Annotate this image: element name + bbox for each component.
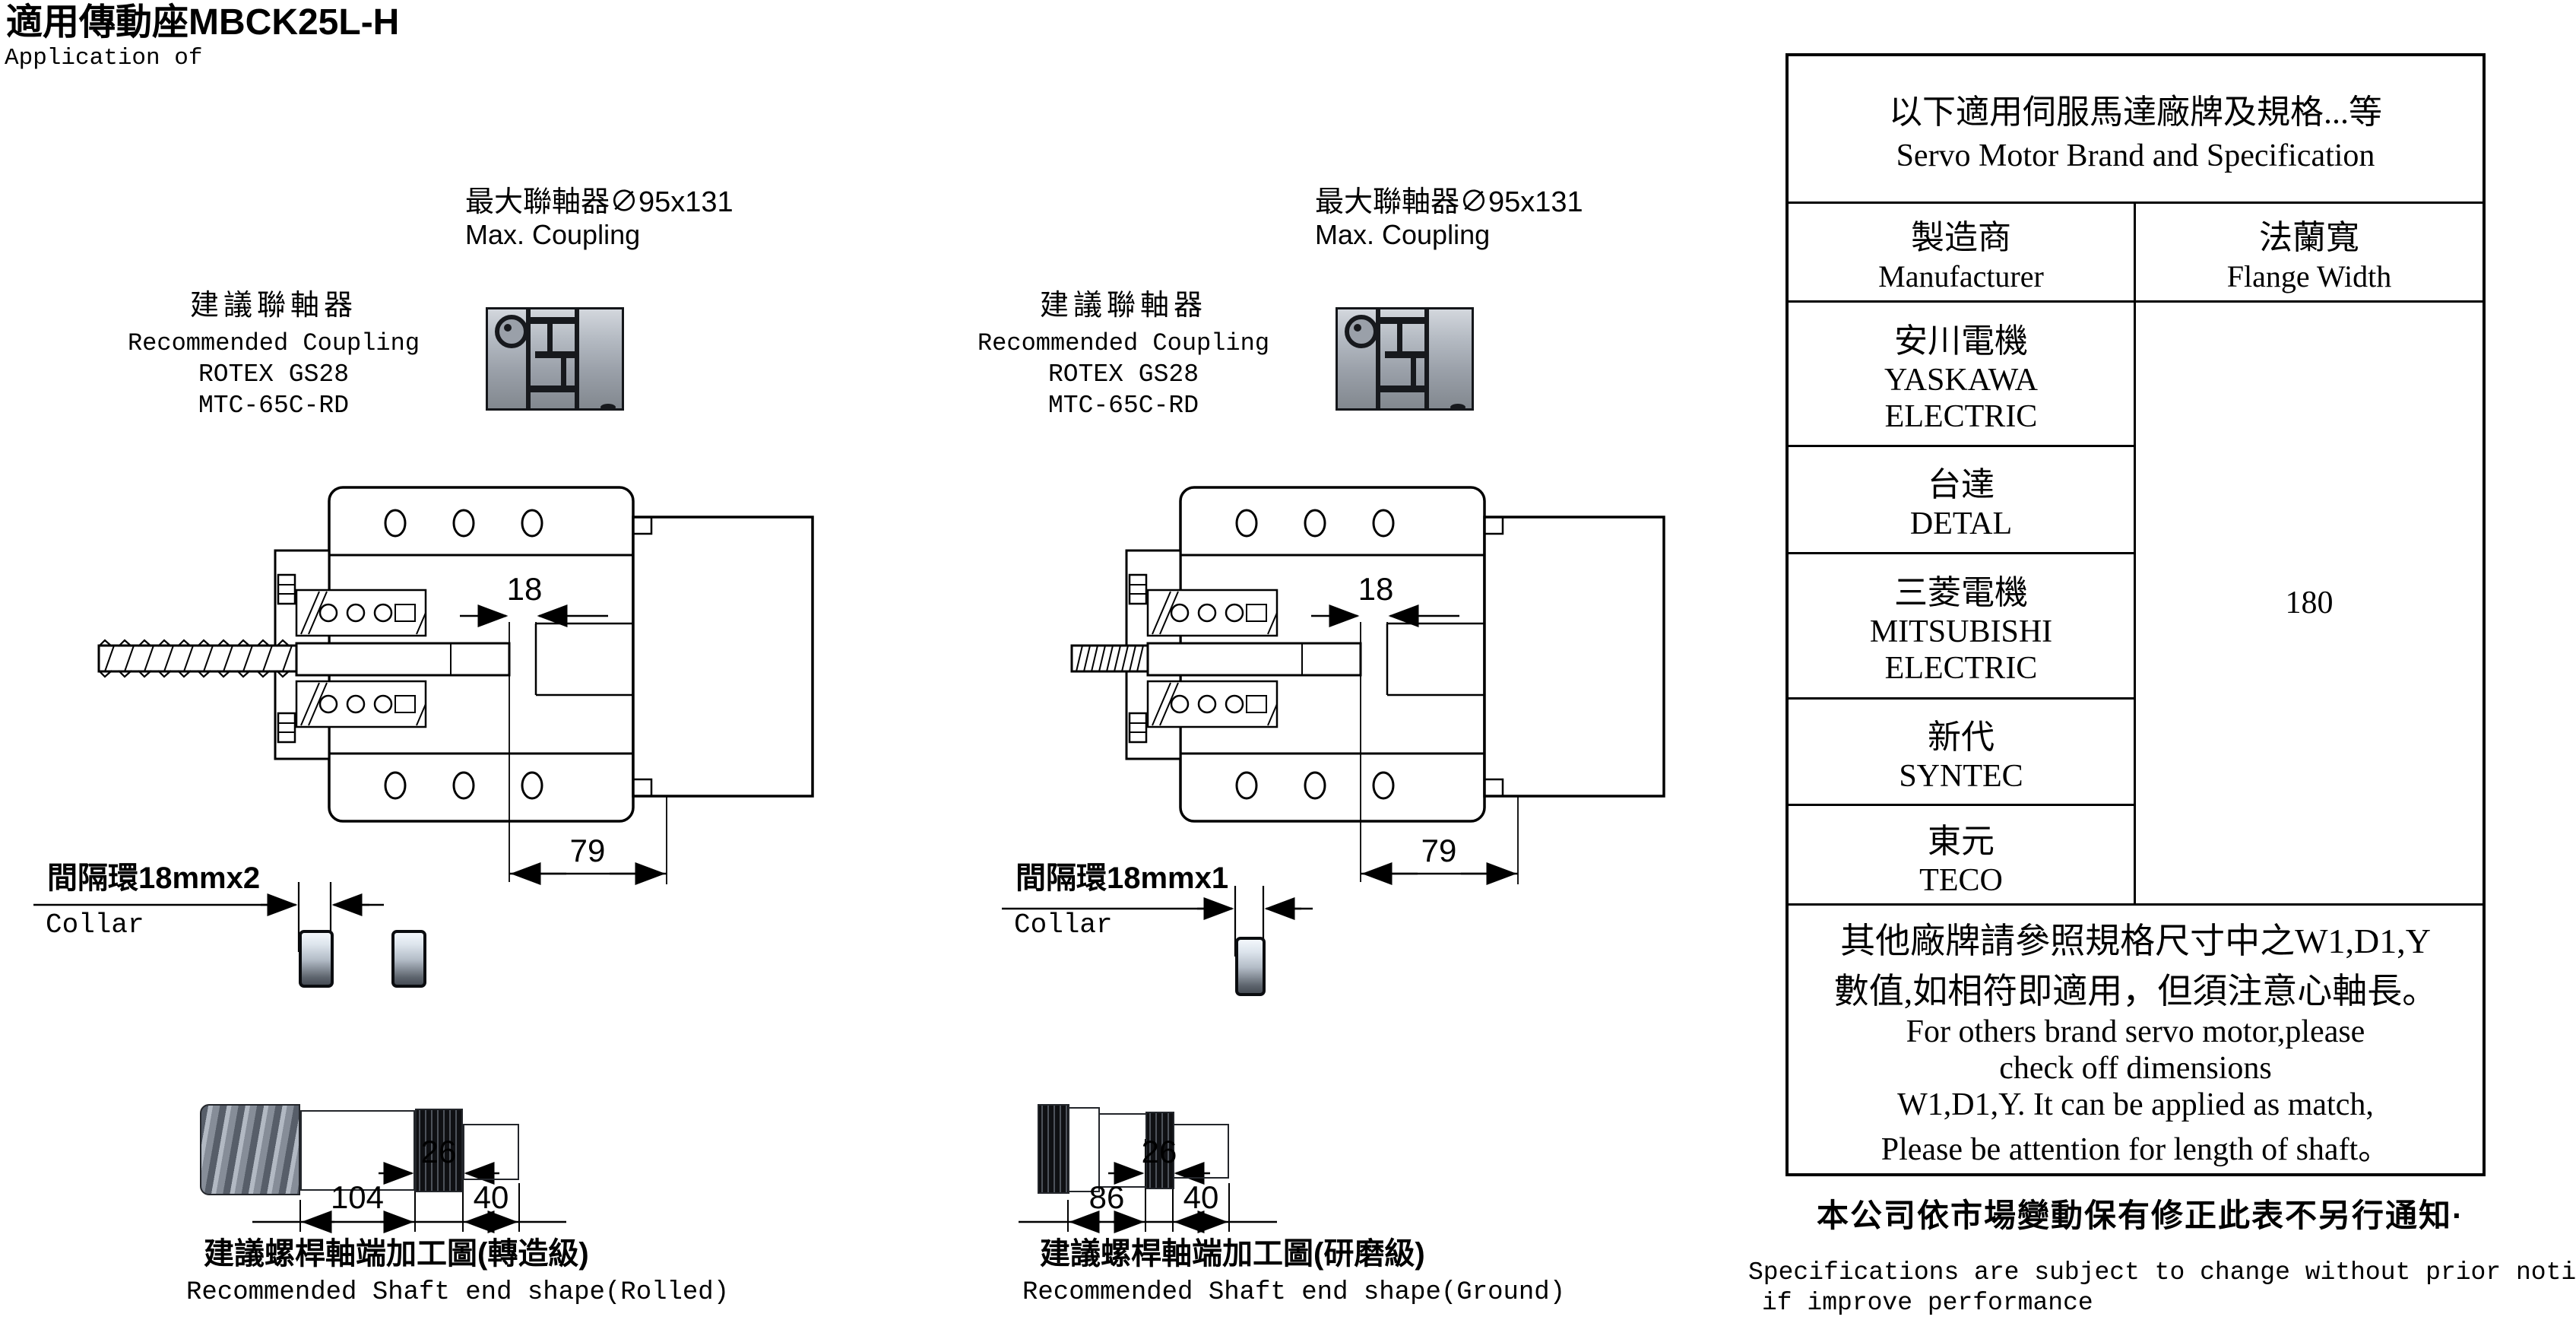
right-dim-79: 79: [1415, 833, 1463, 868]
table-row: 新代 SYNTEC: [1789, 700, 2134, 806]
right-max-coupling-label-zh: 最大聯軸器∅95x131: [1315, 187, 1583, 218]
coupling-bolt-icon: [1345, 315, 1378, 348]
right-caption-zh: 建議螺桿軸端加工圖(研磨級): [1040, 1238, 1425, 1271]
left-collar-ring-2: [391, 930, 426, 988]
row-en: YASKAWA ELECTRIC: [1836, 362, 2086, 435]
right-collar-label-en: Collar: [1014, 911, 1113, 941]
row-zh: 三菱電機: [1789, 565, 2134, 614]
note-zh2: 數值,如相符即適用，但須注意心軸長。: [1789, 963, 2483, 1014]
row-en: DETAL: [1789, 506, 2134, 542]
row-zh: 新代: [1789, 709, 2134, 758]
left-max-coupling-label-en: Max. Coupling: [465, 221, 640, 250]
table-body: 安川電機 YASKAWA ELECTRIC 台達 DETAL 三菱電機 MITS…: [1789, 303, 2483, 906]
table-title: 以下適用伺服馬達廠牌及規格...等 Servo Motor Brand and …: [1789, 56, 2483, 204]
left-dim-79: 79: [563, 833, 612, 868]
row-zh: 台達: [1789, 457, 2134, 506]
flange-width-value-cell: 180: [2136, 303, 2483, 903]
row-zh: 東元: [1789, 814, 2134, 862]
right-shaft-dim-86: 86: [1070, 1180, 1143, 1214]
right-rec-coupling-en: Recommended Coupling: [956, 329, 1291, 357]
left-collar-label-zh: 間隔環18mmx2: [47, 862, 260, 895]
left-shaft-dim-40: 40: [467, 1180, 515, 1214]
right-shaft-dim-40: 40: [1177, 1180, 1225, 1214]
servo-spec-table: 以下適用伺服馬達廠牌及規格...等 Servo Motor Brand and …: [1785, 53, 2486, 1176]
row-zh: 安川電機: [1789, 313, 2134, 362]
note-en4: Please be attention for length of shaft。: [1789, 1123, 2483, 1169]
left-dim-18: 18: [500, 572, 549, 606]
right-caption-en: Recommended Shaft end shape(Ground): [1022, 1279, 1565, 1307]
right-max-coupling-label-en: Max. Coupling: [1315, 221, 1490, 250]
note-en2: check off dimensions: [1789, 1050, 2483, 1087]
footer-note-en1: Specifications are subject to change wit…: [1748, 1259, 2576, 1287]
left-rec-coupling-en: Recommended Coupling: [106, 329, 441, 357]
right-recommended-coupling-block: 建議聯軸器 Recommended Coupling ROTEX GS28 MT…: [956, 281, 1291, 420]
left-recommended-coupling-block: 建議聯軸器 Recommended Coupling ROTEX GS28 MT…: [106, 281, 441, 420]
col-manufacturer-en: Manufacturer: [1789, 259, 2134, 294]
page-title: 適用傳動座MBCK25L-H: [6, 3, 399, 43]
right-shaft-dim-26: 26: [1135, 1134, 1183, 1169]
table-row: 台達 DETAL: [1789, 447, 2134, 554]
row-en: SYNTEC: [1789, 758, 2134, 795]
right-rec-coupling-model1: ROTEX GS28: [956, 360, 1291, 389]
left-coupling-image: [486, 307, 624, 411]
footer-note-zh: 本公司依市場變動保有修正此表不另行通知·: [1817, 1198, 2464, 1233]
col-header-manufacturer: 製造商 Manufacturer: [1789, 204, 2136, 300]
right-rec-coupling-zh: 建議聯軸器: [956, 281, 1291, 323]
table-note: 其他廠牌請參照規格尺寸中之W1,D1,Y 數值,如相符即適用，但須注意心軸長。 …: [1789, 906, 2483, 1176]
left-caption-en: Recommended Shaft end shape(Rolled): [186, 1279, 729, 1307]
col-flange-zh: 法蘭寬: [2136, 210, 2483, 259]
left-shaft-dim-104: 104: [321, 1180, 394, 1214]
left-rec-coupling-zh: 建議聯軸器: [106, 281, 441, 323]
col-header-flange-width: 法蘭寬 Flange Width: [2136, 204, 2483, 300]
note-en3: W1,D1,Y. It can be applied as match,: [1789, 1087, 2483, 1123]
col-flange-en: Flange Width: [2136, 259, 2483, 294]
table-row: 安川電機 YASKAWA ELECTRIC: [1789, 303, 2134, 447]
row-en: TECO: [1789, 862, 2134, 899]
left-caption-zh: 建議螺桿軸端加工圖(轉造級): [204, 1238, 589, 1271]
note-en1: For others brand servo motor,please: [1789, 1014, 2483, 1050]
table-row: 三菱電機 MITSUBISHI ELECTRIC: [1789, 554, 2134, 700]
right-coupling-image: [1336, 307, 1474, 411]
right-dim-18: 18: [1351, 572, 1400, 606]
footer-note-en2: if improve performance: [1762, 1290, 2093, 1317]
table-title-zh: 以下適用伺服馬達廠牌及規格...等: [1789, 84, 2483, 133]
note-zh1: 其他廠牌請參照規格尺寸中之W1,D1,Y: [1789, 913, 2483, 963]
left-rec-coupling-model1: ROTEX GS28: [106, 360, 441, 389]
row-en: MITSUBISHI ELECTRIC: [1836, 614, 2086, 687]
table-title-en: Servo Motor Brand and Specification: [1789, 138, 2483, 174]
datasheet-page: 適用傳動座MBCK25L-H Application of 最大聯軸器∅95x1…: [0, 0, 2576, 1320]
table-column-headers: 製造商 Manufacturer 法蘭寬 Flange Width: [1789, 204, 2483, 303]
left-max-coupling-label-zh: 最大聯軸器∅95x131: [465, 187, 734, 218]
right-collar-label-zh: 間隔環18mmx1: [1016, 862, 1228, 895]
flange-width-value: 180: [2286, 585, 2334, 621]
coupling-bolt-icon: [495, 315, 528, 348]
page-subtitle: Application of: [5, 46, 202, 71]
left-rec-coupling-model2: MTC-65C-RD: [106, 392, 441, 420]
right-rec-coupling-model2: MTC-65C-RD: [956, 392, 1291, 420]
right-collar-ring: [1235, 937, 1266, 996]
left-collar-ring-1: [299, 930, 334, 988]
left-collar-label-en: Collar: [46, 911, 144, 941]
left-shaft-dim-26: 26: [414, 1134, 463, 1169]
col-manufacturer-zh: 製造商: [1789, 210, 2134, 259]
table-row: 東元 TECO: [1789, 806, 2134, 906]
